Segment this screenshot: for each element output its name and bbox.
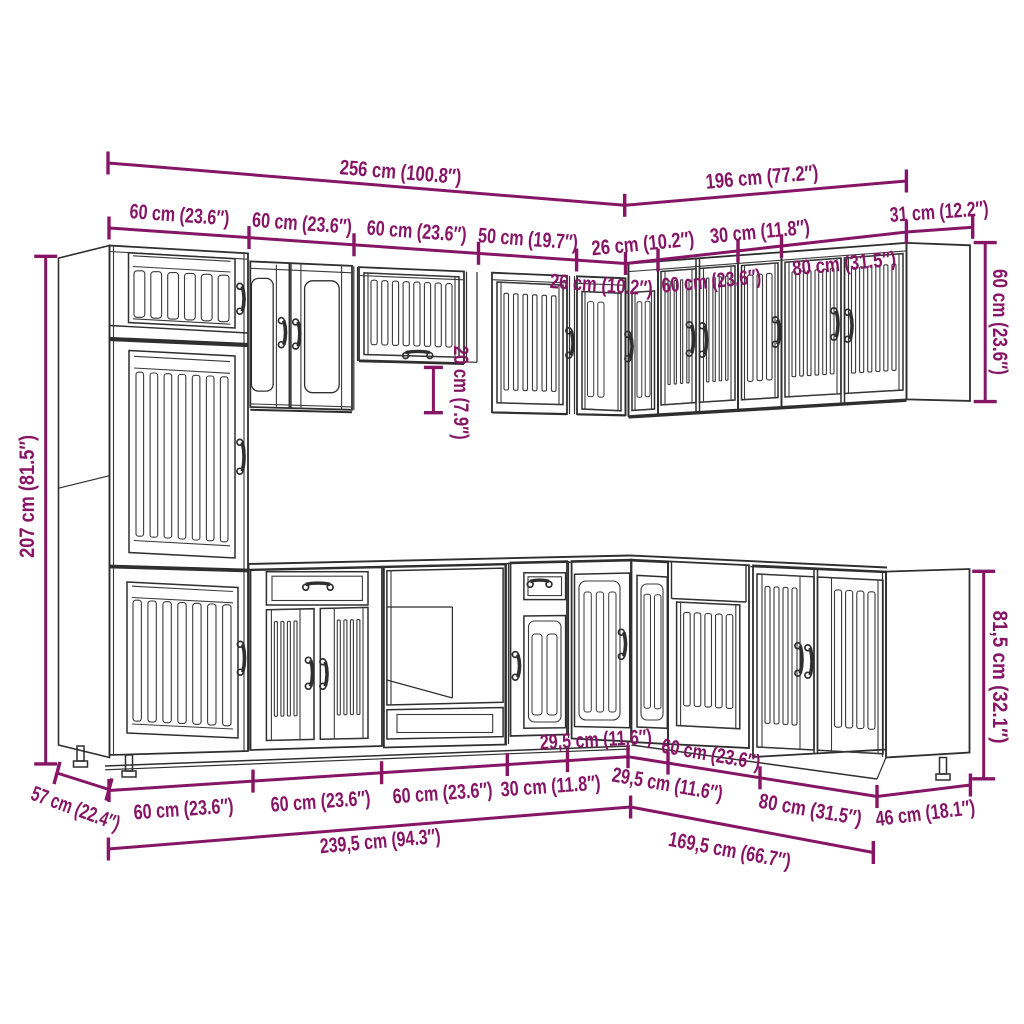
svg-text:20 cm (7.9″): 20 cm (7.9″) [449,346,472,440]
svg-text:207 cm (81.5″): 207 cm (81.5″) [16,435,39,558]
svg-text:60 cm (23.6″): 60 cm (23.6″) [988,269,1011,375]
svg-text:81,5 cm (32.1″): 81,5 cm (32.1″) [988,611,1011,744]
